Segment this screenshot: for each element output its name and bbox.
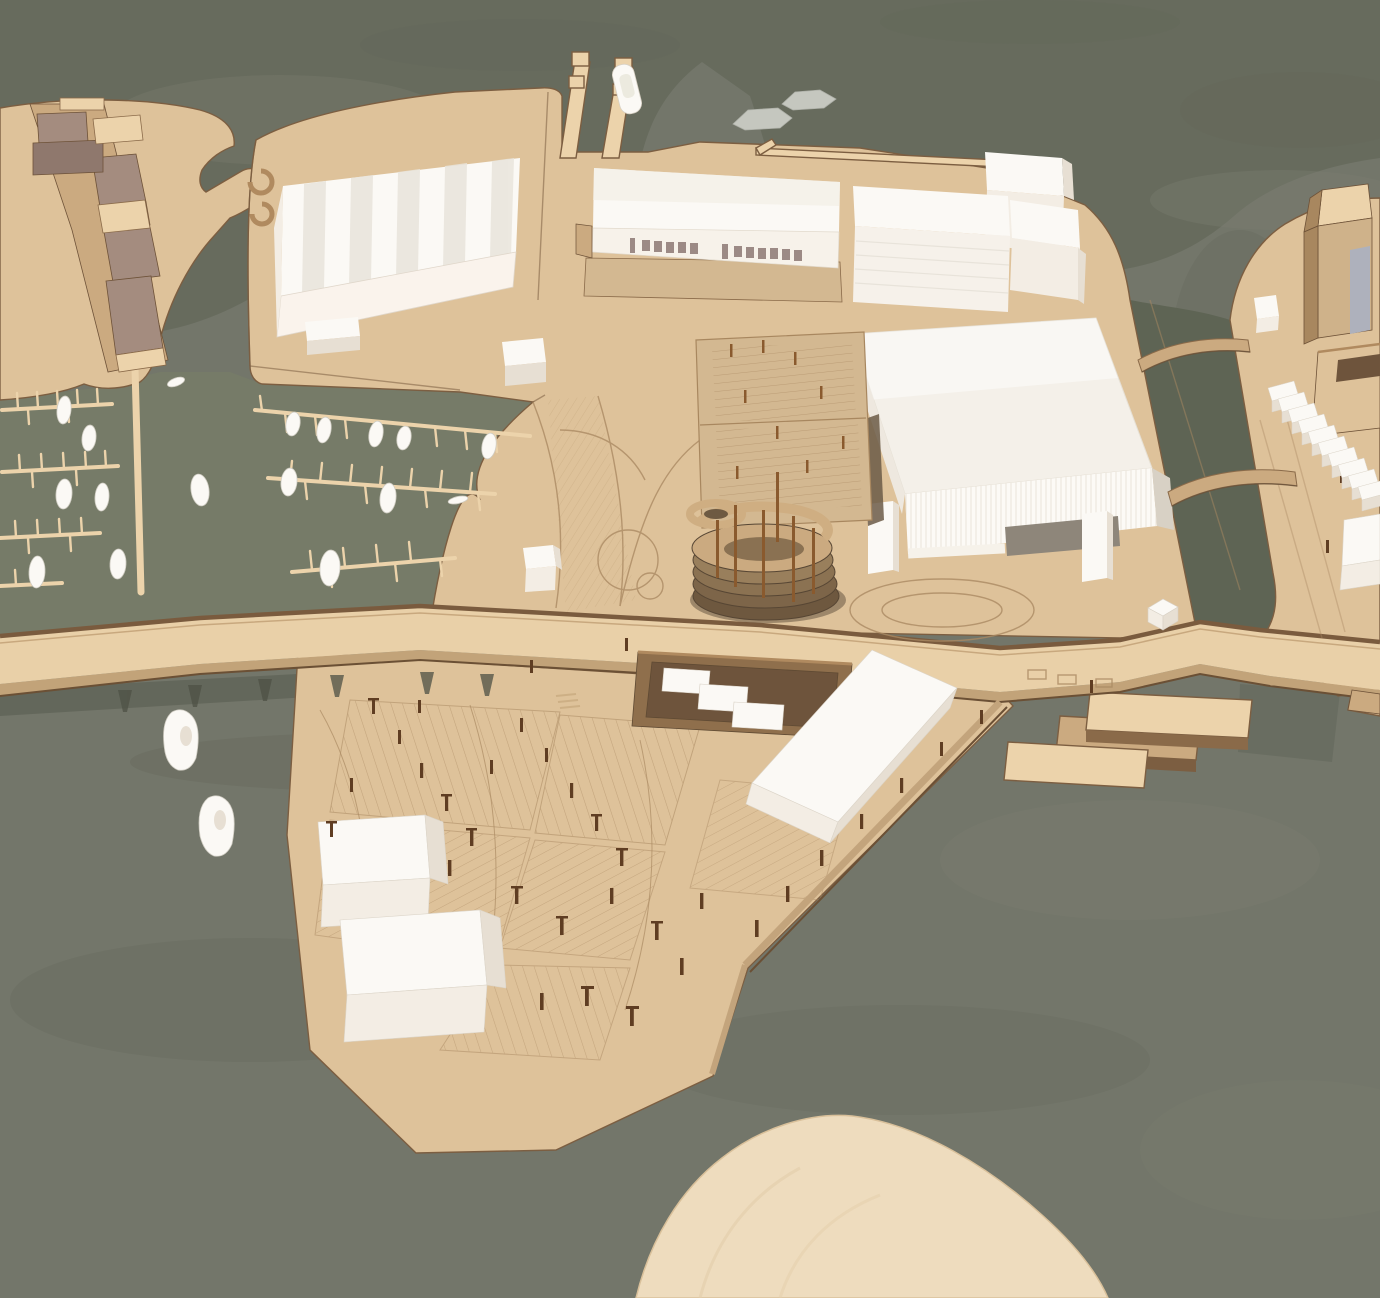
harbour-warehouse	[576, 168, 842, 302]
pier-south-building	[1340, 514, 1380, 590]
warehouse-side-block	[576, 224, 592, 258]
plot-corner-box	[502, 338, 546, 386]
model-photo	[0, 0, 1380, 1298]
right-harbour-shadow	[1238, 684, 1340, 762]
parking-deck	[696, 332, 872, 528]
tower-glass-panel	[1350, 246, 1370, 334]
office-front-slab	[853, 186, 1010, 312]
office-right-wing	[1010, 200, 1086, 304]
silo-tower	[1304, 184, 1372, 344]
model-photo-canvas	[0, 0, 1380, 1298]
sawtooth-forecourt-box	[305, 317, 360, 355]
storage-cube	[340, 910, 506, 1042]
arena-pylon	[1082, 511, 1113, 582]
pier-white-hut	[1254, 295, 1279, 333]
storage-cube	[318, 815, 448, 927]
pier-shed	[1348, 690, 1380, 714]
